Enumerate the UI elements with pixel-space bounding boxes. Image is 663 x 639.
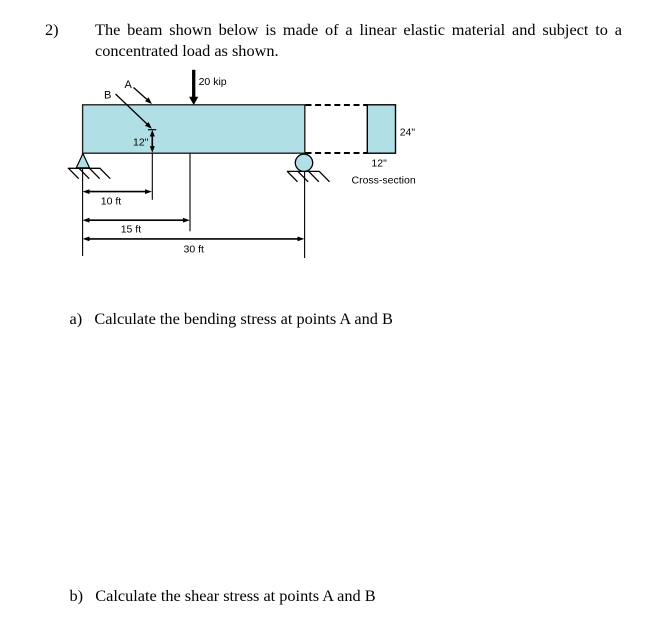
svg-text:30 ft: 30 ft [184,244,205,256]
svg-text:10 ft: 10 ft [101,196,122,208]
svg-text:12": 12" [371,157,387,169]
svg-text:15 ft: 15 ft [121,223,142,235]
svg-text:B: B [104,89,111,101]
svg-text:Cross-section: Cross-section [352,174,416,186]
svg-text:20 kip: 20 kip [199,76,227,88]
svg-text:24": 24" [400,127,416,139]
svg-text:A: A [125,79,133,91]
svg-text:12": 12" [133,136,149,148]
